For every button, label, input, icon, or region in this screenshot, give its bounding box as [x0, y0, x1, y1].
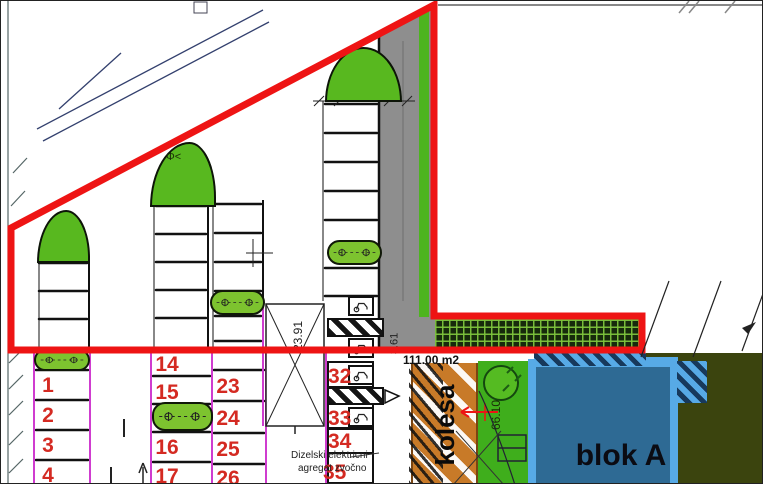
dim-road-label: 3.61 [390, 314, 401, 374]
stall-number: 34 [328, 431, 352, 452]
existing-road-lines [37, 10, 269, 141]
stall-number: 3 [35, 435, 61, 456]
bike-path-label: kolesa [432, 365, 458, 484]
stall-number: 23 [212, 376, 244, 397]
zebra-crossing [327, 387, 384, 405]
site-plan-canvas: Φ< [0, 0, 763, 484]
building-corner-hatch [677, 361, 707, 403]
building-label: blok A [559, 441, 683, 471]
generator-note-line1: Dizelski elektricni [291, 451, 368, 461]
tree-symbol-icon: Φ< [166, 152, 181, 163]
tree-island-symbol [329, 242, 380, 263]
stall-number: 33 [328, 408, 352, 429]
trolley-icon [348, 338, 374, 358]
building-top-hatch [534, 353, 646, 366]
aisle-markings [111, 419, 147, 484]
zebra-crossing [327, 318, 384, 337]
stall-number: 32 [328, 366, 352, 387]
tree-island [327, 240, 382, 265]
generator-note-line2: agregat zvočno [298, 464, 366, 474]
tree-island [34, 349, 90, 371]
dim-green-label: 66.10 [490, 385, 502, 445]
road-surface [379, 5, 644, 353]
stall-number: 15 [151, 382, 183, 403]
hedge-strip [435, 319, 640, 349]
stall-number: 14 [151, 354, 183, 375]
green-verge-strip [419, 9, 429, 317]
tree-island-symbol [36, 351, 88, 369]
stall-number: 24 [212, 408, 244, 429]
stall-number: 4 [35, 465, 61, 484]
stall-number: 1 [35, 375, 61, 396]
stall-number: 2 [35, 405, 61, 426]
tree-island [152, 402, 213, 431]
tree-island [210, 290, 265, 315]
tree-island-symbol [154, 404, 211, 429]
building-top-band [646, 357, 678, 367]
top-boundary-line [438, 1, 763, 13]
stall-number: 16 [151, 437, 183, 458]
trolley-icon [348, 296, 374, 316]
area-label: 111.00 m2 [403, 354, 459, 366]
tree-island-symbol [212, 292, 263, 313]
stall-number: 26 [212, 468, 244, 484]
parcel-line [11, 5, 434, 228]
stall-number: 17 [151, 466, 183, 484]
utility-box [194, 2, 207, 13]
frame-edge [8, 1, 27, 484]
stall-number: 25 [212, 439, 244, 460]
dim-transformer-label: 23.91 [292, 296, 304, 376]
